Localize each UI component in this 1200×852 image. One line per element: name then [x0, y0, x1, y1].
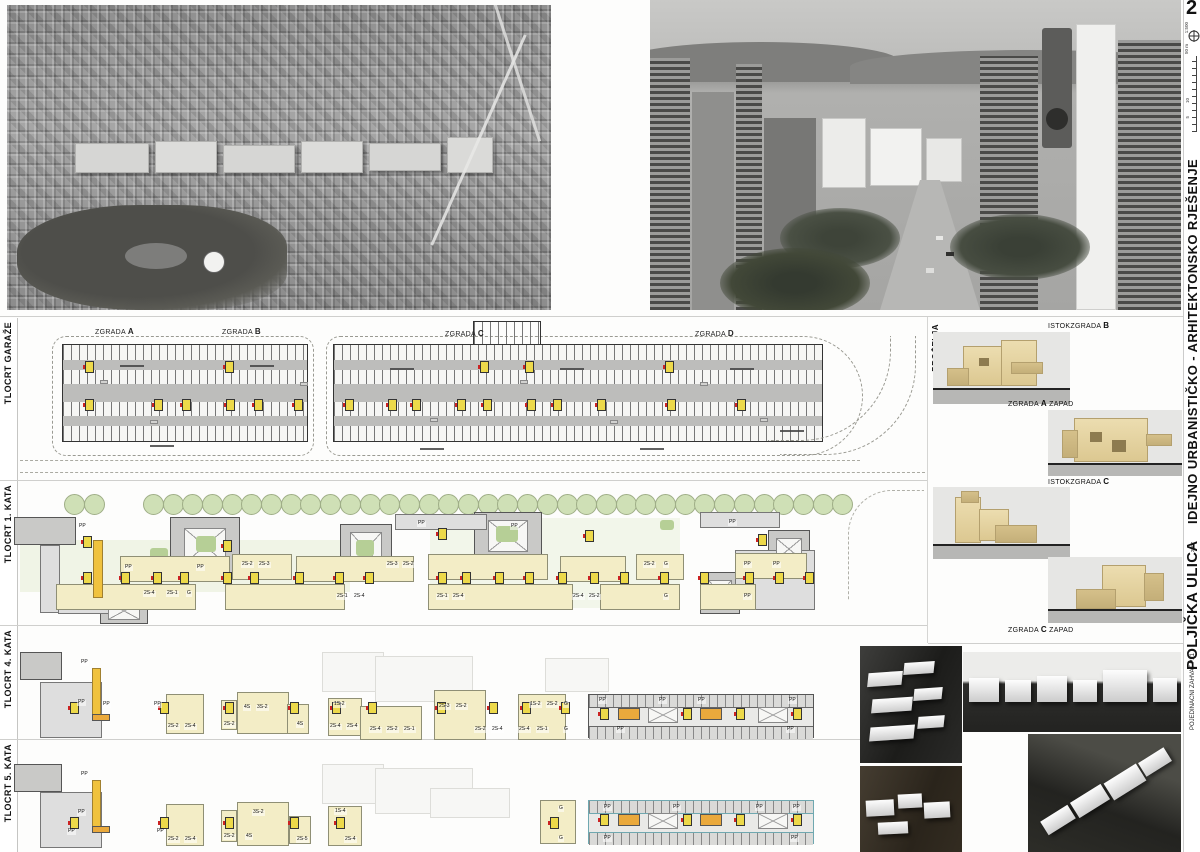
unit-strip	[428, 584, 573, 610]
stair-core	[295, 572, 304, 584]
helipad	[203, 251, 225, 273]
unit-label: 4S	[296, 722, 304, 728]
micro-annotation	[390, 368, 414, 370]
car-symbol	[700, 382, 708, 386]
unit-label: PP	[672, 805, 681, 811]
unit-label: PP	[156, 829, 165, 835]
stair-core	[558, 572, 567, 584]
gallery-bar	[618, 814, 640, 826]
tree-icon	[261, 494, 282, 515]
unit-label: 2S-4	[369, 727, 382, 733]
garage-slab-cd	[333, 344, 823, 442]
unit-label: 1S-4	[334, 809, 347, 815]
unit-label: 2S-3	[386, 562, 399, 568]
void-x	[648, 813, 678, 829]
gallery-bar	[700, 814, 722, 826]
building-right	[1118, 40, 1181, 310]
unit-label: PP	[80, 772, 89, 778]
garage-slab-ab	[62, 344, 308, 442]
stair-core	[667, 399, 676, 411]
unit-label: 2S-4	[353, 594, 366, 600]
proposed-model	[822, 118, 866, 188]
unit-label: PP	[792, 805, 801, 811]
drive-aisle	[63, 416, 307, 426]
model-block	[866, 799, 895, 816]
unit-label: PP	[603, 805, 612, 811]
car	[926, 268, 934, 273]
lower-floor-ghost	[430, 788, 510, 818]
stair-core	[600, 814, 609, 826]
stair-core	[793, 708, 802, 720]
unit-label: PP	[790, 836, 799, 842]
tree-icon	[813, 494, 834, 515]
model-block	[1153, 678, 1177, 702]
aerial-photo	[7, 5, 551, 310]
void-x	[758, 707, 788, 723]
tree-row	[720, 248, 870, 310]
model-block	[917, 715, 945, 729]
stair-core	[223, 540, 232, 552]
micro-annotation	[250, 365, 274, 367]
road-line	[492, 5, 541, 142]
unit-label: PP	[603, 836, 612, 842]
unit-label: PP	[80, 660, 89, 666]
unit-label: 2S-1	[536, 727, 549, 733]
gallery-bar	[618, 708, 640, 720]
row-label-garage: TLOCRT GARAŽE	[0, 318, 18, 480]
unit-label: 2S-1	[166, 591, 179, 597]
stair-core	[365, 572, 374, 584]
unit-label: 2S-2	[386, 727, 399, 733]
stair-core	[660, 572, 669, 584]
tree-icon	[143, 494, 164, 515]
unit-strip	[589, 801, 813, 813]
facade-model-photo-zgrada-a-zapad	[1048, 410, 1182, 476]
model-window	[1112, 440, 1126, 452]
project-title: IDEJNO URBANISTIČKO - ARHITEKTONSKO RJEŠ…	[1185, 138, 1200, 544]
tree-icon	[675, 494, 696, 515]
tree-icon	[399, 494, 420, 515]
stair-core	[480, 361, 489, 373]
unit-label: PP	[786, 727, 795, 733]
micro-annotation	[780, 430, 804, 432]
stair-core	[793, 814, 802, 826]
road-curve	[848, 490, 924, 600]
building-left	[650, 58, 690, 310]
stair-core	[620, 572, 629, 584]
tree-icon	[616, 494, 637, 515]
stair-core	[525, 361, 534, 373]
unit-label: 4S	[243, 705, 251, 711]
micro-annotation	[560, 368, 584, 370]
tree-icon	[182, 494, 203, 515]
unit-strip	[296, 556, 414, 582]
stair-core	[290, 702, 299, 714]
facade-label: ISTOKZGRADA B	[1048, 321, 1109, 330]
car-symbol	[520, 380, 528, 384]
stair-bar	[93, 540, 103, 598]
unit-label: 4S	[245, 834, 253, 840]
building-block	[700, 512, 780, 528]
stair-core	[597, 399, 606, 411]
unit-label: PP	[78, 524, 87, 530]
tree-icon	[241, 494, 262, 515]
model-block	[1074, 418, 1148, 462]
unit-label: 2S-4	[184, 724, 197, 730]
tree-icon	[596, 494, 617, 515]
facade-label: ZGRADA A ZAPAD	[1008, 399, 1073, 408]
model-block	[898, 793, 923, 808]
project-subtitle: POJEDINAČNI ZAHVAT P21	[1190, 672, 1196, 730]
unit-label: G	[663, 562, 669, 568]
stair-core	[336, 817, 345, 829]
unit-label: 2S-4	[329, 724, 342, 730]
building-block	[20, 652, 62, 680]
model-block	[1104, 763, 1147, 800]
tree-icon	[300, 494, 321, 515]
stair-core	[745, 572, 754, 584]
stair-core	[737, 399, 746, 411]
row-label-text: TLOCRT GARAŽE	[3, 322, 13, 404]
car-symbol	[430, 418, 438, 422]
stair-core	[154, 399, 163, 411]
tree-icon	[360, 494, 381, 515]
tree-icon	[793, 494, 814, 515]
row-label-text: TLOCRT 5. KATA	[3, 744, 13, 822]
building-block	[14, 517, 76, 545]
unit-label: 2S-4	[143, 591, 156, 597]
unit-label: 2S-3	[438, 704, 451, 710]
lower-floor-ghost	[545, 658, 609, 692]
proposed-massing	[369, 143, 441, 171]
stair-core	[457, 399, 466, 411]
unit-label: G	[663, 594, 669, 600]
model-block	[869, 724, 915, 741]
model-window	[1090, 432, 1102, 442]
model-block	[1144, 573, 1164, 601]
parking-stalls	[63, 426, 307, 441]
model-block	[903, 661, 935, 675]
micro-annotation	[120, 365, 144, 367]
tree-icon	[655, 494, 676, 515]
model-block	[1011, 362, 1043, 374]
model-block	[1040, 805, 1076, 836]
car	[936, 236, 943, 240]
unit-label: PP	[153, 702, 162, 708]
courtyard-green	[356, 540, 374, 556]
model-block	[924, 801, 951, 818]
unit-label: PP	[728, 520, 737, 526]
void-x	[758, 813, 788, 829]
tree-icon	[320, 494, 341, 515]
stair-core	[462, 572, 471, 584]
stair-core	[489, 702, 498, 714]
stair-core	[600, 708, 609, 720]
unit-label: 2S-2	[643, 562, 656, 568]
unit-label: G	[563, 727, 569, 733]
tree-icon	[635, 494, 656, 515]
tree-row	[950, 214, 1090, 280]
stair-core	[223, 572, 232, 584]
model-block	[947, 368, 969, 386]
unit-label: PP	[755, 805, 764, 811]
model-photo-diagonal-4	[1028, 734, 1181, 852]
model-photo-detail-3	[860, 766, 962, 852]
tree-icon	[64, 494, 85, 515]
stair-core	[83, 536, 92, 548]
tree-icon	[163, 494, 184, 515]
stair-core	[683, 708, 692, 720]
model-block	[871, 697, 913, 714]
stair-core	[590, 572, 599, 584]
stair-core	[226, 399, 235, 411]
model-block	[913, 687, 943, 701]
model-block	[955, 497, 981, 543]
stair-core	[700, 572, 709, 584]
drive-aisle	[334, 416, 822, 426]
row-label-floor5: TLOCRT 5. KATA	[0, 740, 18, 852]
model-photo-overview-1	[860, 646, 962, 763]
stair-bar	[92, 780, 101, 828]
car	[946, 252, 954, 256]
unit-label: 2S-5	[296, 837, 309, 843]
unit-label: PP	[67, 829, 76, 835]
parking-stalls	[63, 345, 307, 360]
row-label-floor1: TLOCRT 1. KATA	[0, 481, 18, 625]
tree-icon	[832, 494, 853, 515]
scale-length: 50 m	[1184, 44, 1189, 54]
unit-label: PP	[697, 698, 706, 704]
divider	[0, 625, 928, 626]
model-block	[878, 821, 909, 835]
stair-core	[254, 399, 263, 411]
row-label-text: TLOCRT 1. KATA	[3, 485, 13, 563]
model-block	[1138, 747, 1172, 776]
unit-label: PP	[102, 702, 111, 708]
unit-label: PP	[77, 810, 86, 816]
stair-core	[585, 530, 594, 542]
row-label-floor4: TLOCRT 4. KATA	[0, 626, 18, 739]
tree-icon	[379, 494, 400, 515]
model-block	[995, 525, 1037, 543]
tree-icon	[576, 494, 597, 515]
stair-core	[153, 572, 162, 584]
unit-label: 1S-2	[529, 702, 542, 708]
building-label: ZGRADA C	[445, 329, 484, 338]
model-block	[961, 491, 979, 503]
stair-core	[805, 572, 814, 584]
unit-label: PP	[598, 698, 607, 704]
stair-core	[736, 708, 745, 720]
unit-label: 2S-4	[452, 594, 465, 600]
unit-label: 2S-1	[436, 594, 449, 600]
unit-label: PP	[788, 698, 797, 704]
unit-label: PP	[616, 727, 625, 733]
model-ground	[1048, 463, 1182, 476]
page-number: 2	[1186, 0, 1197, 20]
scale-tick-10: 10	[1185, 98, 1190, 103]
unit-cluster	[237, 692, 289, 734]
car-symbol	[610, 420, 618, 424]
building-right	[1076, 24, 1116, 310]
building-block	[14, 764, 62, 792]
model-block	[1070, 784, 1110, 818]
stair-core	[665, 361, 674, 373]
unit-label: PP	[77, 700, 86, 706]
unit-label: G	[563, 702, 569, 708]
stair-core	[438, 528, 447, 540]
stair-core	[683, 814, 692, 826]
model-ground	[1048, 609, 1182, 623]
unit-label: 2S-1	[403, 727, 416, 733]
proposed-massing	[301, 141, 363, 173]
unit-label: 2S-2	[455, 704, 468, 710]
unit-cluster	[434, 690, 486, 740]
building-label: ZGRADA B	[222, 327, 261, 336]
model-block	[1005, 680, 1031, 702]
facade-model-photo-zgrada-c-zapad	[1048, 557, 1182, 623]
model-block	[969, 678, 999, 702]
proposed-model	[870, 128, 922, 186]
courtyard-green	[196, 536, 216, 552]
model-block	[1146, 434, 1172, 446]
building-label: ZGRADA A	[95, 327, 134, 336]
stair-bar	[92, 668, 101, 716]
stair-core	[388, 399, 397, 411]
title-strip: 2 1:500 50 m 10 5 IDEJNO URBANISTIČKO - …	[1183, 0, 1200, 852]
unit-label: G	[558, 806, 564, 812]
unit-label: 2S-2	[588, 594, 601, 600]
stair-core	[85, 399, 94, 411]
presentation-board: TLOCRT GARAŽE TLOCRT 1. KATA TLOCRT 4. K…	[0, 0, 1200, 852]
billboard-circle	[1046, 108, 1068, 130]
scale-tick-5: 5	[1185, 116, 1190, 119]
unit-label: PP	[417, 521, 426, 527]
divider	[928, 643, 1183, 644]
scale-ruler	[1192, 56, 1197, 132]
core-band	[334, 384, 822, 402]
model-block	[1103, 670, 1147, 702]
tree-icon	[419, 494, 440, 515]
unit-label: 2S-2	[167, 837, 180, 843]
unit-label: 2S-4	[572, 594, 585, 600]
gallery-bar	[92, 714, 110, 721]
road-line	[430, 34, 526, 245]
tree-icon	[438, 494, 459, 515]
micro-annotation	[150, 445, 174, 447]
unit-strip	[120, 556, 230, 582]
stair-core	[182, 399, 191, 411]
facade-model-photo-istok-zgrada-b	[933, 332, 1070, 404]
model-block	[1073, 680, 1097, 702]
north-icon	[1188, 30, 1200, 42]
road-line	[20, 460, 860, 461]
gallery-bar	[92, 826, 110, 833]
unit-label: 2S-4	[346, 724, 359, 730]
tree-icon	[84, 494, 105, 515]
unit-label: G	[186, 591, 192, 597]
car-symbol	[150, 420, 158, 424]
tree-icon	[222, 494, 243, 515]
model-block	[1062, 430, 1078, 458]
stair-core	[250, 572, 259, 584]
tree-icon	[340, 494, 361, 515]
gallery-bar	[700, 708, 722, 720]
stair-core	[83, 572, 92, 584]
scale-ratio: 1:500	[1184, 22, 1189, 33]
courtyard-green	[660, 520, 674, 530]
stair-core	[525, 572, 534, 584]
stair-core	[550, 817, 559, 829]
car-symbol	[760, 418, 768, 422]
stair-core	[85, 361, 94, 373]
unit-strip	[225, 584, 345, 610]
unit-strip	[56, 584, 196, 610]
unit-label: PP	[124, 565, 133, 571]
parking-stalls	[334, 426, 822, 441]
unit-label: 2S-1	[336, 594, 349, 600]
stair-core	[775, 572, 784, 584]
unit-label: 3S-2	[256, 705, 269, 711]
stair-core	[294, 399, 303, 411]
unit-label: PP	[772, 562, 781, 568]
facade-label: ISTOKZGRADA C	[1048, 477, 1109, 486]
parking-stalls	[334, 402, 822, 416]
stair-core	[345, 399, 354, 411]
stair-core	[335, 572, 344, 584]
unit-label: PP	[658, 698, 667, 704]
model-block	[1037, 676, 1067, 702]
unit-label: 2S-2	[402, 562, 415, 568]
unit-label: 2S-2	[167, 724, 180, 730]
pond	[125, 243, 187, 269]
proposed-model	[926, 138, 962, 182]
tree-icon	[281, 494, 302, 515]
stair-core	[180, 572, 189, 584]
stair-core	[736, 814, 745, 826]
billboard	[1042, 28, 1072, 148]
stair-core	[483, 399, 492, 411]
divider	[0, 480, 928, 481]
facade-label: ZGRADA C ZAPAD	[1008, 625, 1073, 634]
parking-stalls	[334, 345, 822, 360]
stair-core	[553, 399, 562, 411]
unit-label: 2S-2	[474, 727, 487, 733]
stair-core	[495, 572, 504, 584]
stair-core	[121, 572, 130, 584]
divider	[0, 316, 1183, 317]
unit-label: 2S-4	[184, 837, 197, 843]
unit-label: PP	[196, 565, 205, 571]
unit-label: 2S-2	[223, 722, 236, 728]
unit-label: 2S-4	[491, 727, 504, 733]
void-x	[648, 707, 678, 723]
stair-core	[225, 702, 234, 714]
facade-model-photo-istok-zgrada-c	[933, 487, 1070, 559]
unit-label: 2S-3	[258, 562, 271, 568]
unit-label: 2S-2	[546, 702, 559, 708]
stair-core	[225, 817, 234, 829]
stair-core	[527, 399, 536, 411]
unit-label: 2S-4	[518, 727, 531, 733]
divider	[927, 317, 928, 643]
model-photo-row-2	[963, 652, 1181, 732]
tree-icon	[202, 494, 223, 515]
stair-core	[438, 572, 447, 584]
unit-strip	[589, 833, 813, 845]
unit-label: 2S-2	[241, 562, 254, 568]
stair-core	[758, 534, 767, 546]
